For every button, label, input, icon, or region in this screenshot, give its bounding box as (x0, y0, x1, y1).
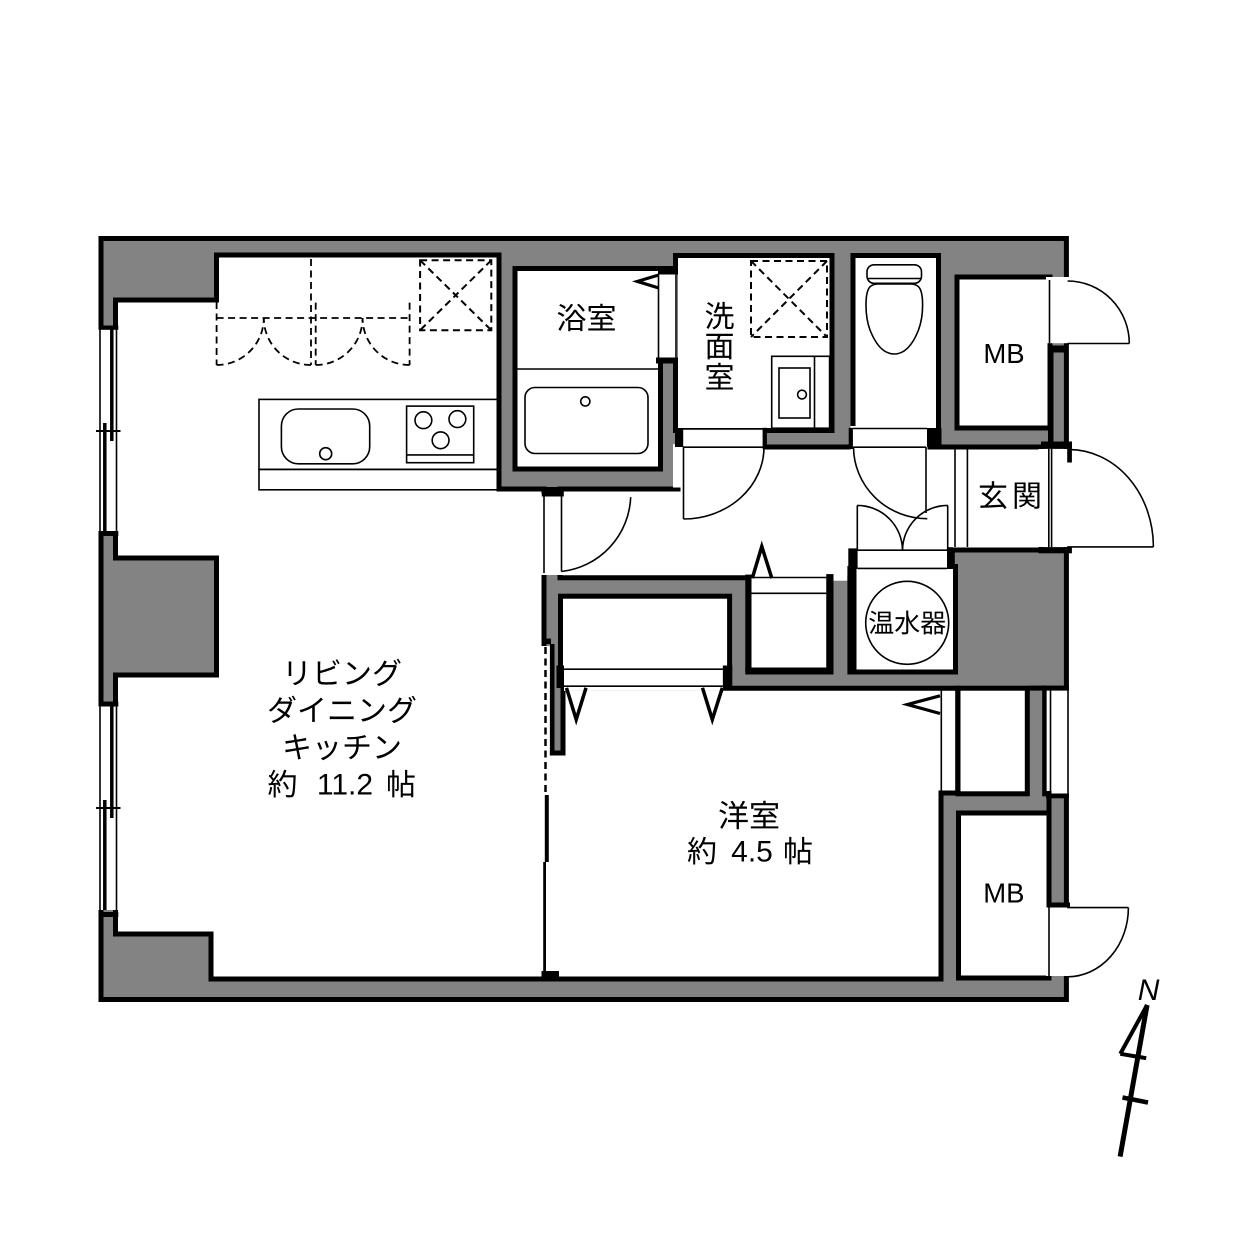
svg-text:11.2: 11.2 (317, 769, 373, 802)
svg-text:MB: MB (983, 877, 1024, 908)
svg-text:4.5: 4.5 (731, 836, 773, 869)
svg-text:MB: MB (983, 338, 1024, 369)
svg-text:N: N (1138, 974, 1160, 1007)
